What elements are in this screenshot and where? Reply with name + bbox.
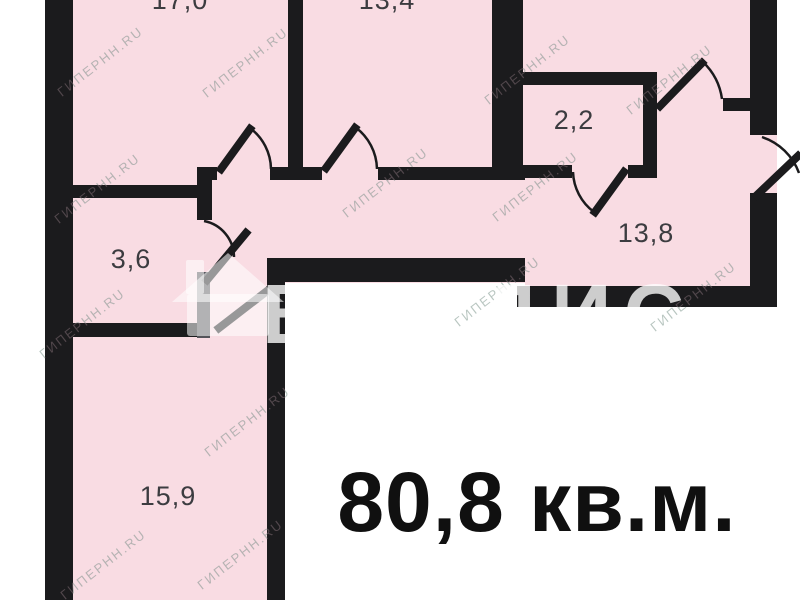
floorplan-image: 17,0 13,4 2,2 13,8 3,6 15,9 ГИПЕРНН.RU Г…	[0, 0, 800, 600]
room-13-8-area-label: 13,8	[618, 218, 675, 248]
room-15-9-area-label: 15,9	[140, 481, 197, 511]
wall-segment	[517, 72, 657, 85]
wall-segment	[288, 0, 303, 172]
wall-segment	[270, 167, 322, 180]
wall-segment	[628, 165, 657, 178]
house-body	[187, 294, 269, 336]
wall-segment	[197, 167, 212, 220]
room-2-2-area-label: 2,2	[554, 105, 595, 135]
wall-segment	[750, 0, 777, 135]
wall-segment	[723, 98, 750, 111]
room-13-4-area-label: 13,4	[359, 0, 416, 15]
wall-segment	[45, 185, 197, 198]
brand-watermark: ВЛАДИС	[262, 267, 696, 361]
total-area-label: 80,8 кв.м.	[337, 455, 736, 549]
floor-center-wing	[285, 0, 525, 283]
room-17-0-area-label: 17,0	[152, 0, 209, 15]
floorplan-svg: 17,0 13,4 2,2 13,8 3,6 15,9 ГИПЕРНН.RU Г…	[0, 0, 800, 600]
room-3-6-area-label: 3,6	[111, 244, 152, 274]
